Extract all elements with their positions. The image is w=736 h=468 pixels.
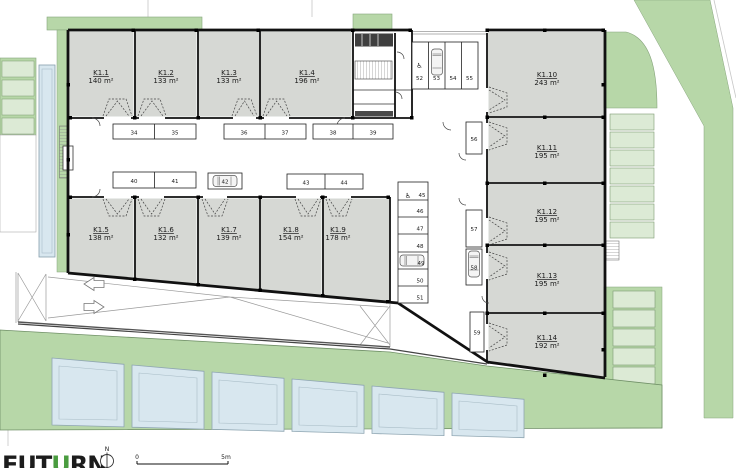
unit-area: 195 m² bbox=[534, 280, 559, 288]
floor-plan-page: 34 35 36 37 38 39 40 41 42 43 44 ♿ 52 53… bbox=[0, 0, 736, 468]
wheelchair-icon: ♿ bbox=[405, 192, 411, 200]
unit-id: K1.3 bbox=[221, 69, 237, 77]
stall-number: 56 bbox=[471, 137, 478, 143]
stall-number: 58 bbox=[471, 266, 478, 272]
unit-area: 132 m² bbox=[153, 234, 178, 242]
paved-area-left bbox=[0, 135, 36, 232]
stall-number: 36 bbox=[241, 131, 248, 137]
stall-number: 38 bbox=[330, 131, 337, 137]
unit-area: 192 m² bbox=[534, 342, 559, 350]
stall-number: 44 bbox=[341, 181, 348, 187]
unit-area: 154 m² bbox=[278, 234, 303, 242]
unit-area: 133 m² bbox=[153, 77, 178, 85]
unit-area: 138 m² bbox=[88, 234, 113, 242]
stall-number: 53 bbox=[433, 76, 440, 82]
scale-zero-label: 0 bbox=[135, 454, 139, 461]
unit-id: K1.4 bbox=[299, 69, 315, 77]
unit-area: 195 m² bbox=[534, 152, 559, 160]
parked-car bbox=[469, 251, 480, 277]
green-patch-core bbox=[353, 14, 392, 30]
north-label: N bbox=[105, 446, 110, 453]
site-plan-drawing: 34 35 36 37 38 39 40 41 42 43 44 ♿ 52 53… bbox=[0, 0, 736, 468]
unit-id: K1.1 bbox=[93, 69, 109, 77]
unit-area: 195 m² bbox=[534, 216, 559, 224]
arrow-left-icon bbox=[84, 278, 104, 291]
stall-number: 40 bbox=[131, 179, 138, 185]
stall-number: 49 bbox=[418, 261, 425, 267]
stall-number: 59 bbox=[474, 331, 481, 337]
stall-number: 54 bbox=[450, 76, 457, 82]
unit-id: K1.9 bbox=[330, 226, 346, 234]
footer: FUTURN N 0 5m bbox=[2, 446, 231, 468]
stall-number: 47 bbox=[417, 227, 424, 233]
north-arrow-icon: N bbox=[101, 446, 114, 468]
stall-number: 52 bbox=[416, 76, 423, 82]
wheelchair-icon: ♿ bbox=[416, 62, 422, 70]
stall-number: 41 bbox=[172, 179, 179, 185]
unit-area: 140 m² bbox=[88, 77, 113, 85]
logo: FUTURN bbox=[2, 451, 106, 468]
building bbox=[60, 29, 606, 379]
unit-area: 243 m² bbox=[534, 79, 559, 87]
stair-core bbox=[353, 34, 412, 117]
stall-number: 46 bbox=[417, 209, 424, 215]
unit-area: 178 m² bbox=[325, 234, 350, 242]
stall-number: 35 bbox=[172, 131, 179, 137]
stall-number: 50 bbox=[417, 279, 424, 285]
stall-number: 45 bbox=[419, 193, 426, 199]
stall-number: 51 bbox=[417, 296, 424, 302]
exterior-stair-right bbox=[606, 241, 619, 260]
stall-number: 43 bbox=[303, 181, 310, 187]
unit-area: 139 m² bbox=[216, 234, 241, 242]
parking-ladder-upper bbox=[610, 114, 654, 238]
unit-fills bbox=[70, 32, 604, 378]
unit-id: K1.14 bbox=[537, 334, 558, 342]
glass-canopy-strip bbox=[39, 65, 55, 257]
scale-max-label: 5m bbox=[221, 454, 231, 461]
unit-id: K1.7 bbox=[221, 226, 237, 234]
stall-number: 57 bbox=[471, 227, 478, 233]
stall-number: 42 bbox=[222, 180, 229, 186]
core-stair bbox=[355, 61, 392, 79]
logo-text: FUT bbox=[2, 451, 53, 468]
unit-id: K1.10 bbox=[537, 71, 557, 79]
parked-car bbox=[432, 49, 443, 75]
green-curve-right bbox=[604, 32, 657, 108]
unit-id: K1.5 bbox=[93, 226, 109, 234]
scale-bar: 0 5m bbox=[135, 454, 231, 464]
green-strip-top bbox=[47, 17, 202, 30]
stall-number: 39 bbox=[370, 131, 377, 137]
unit-area: 133 m² bbox=[216, 77, 241, 85]
stall-number: 34 bbox=[131, 131, 138, 137]
stall-number: 37 bbox=[282, 131, 289, 137]
unit-area: 196 m² bbox=[294, 77, 319, 85]
stall-number: 55 bbox=[466, 76, 473, 82]
unit-id: K1.11 bbox=[537, 144, 557, 152]
unit-id: K1.13 bbox=[537, 272, 557, 280]
unit-id: K1.12 bbox=[537, 208, 557, 216]
unit-id: K1.8 bbox=[283, 226, 299, 234]
stall-number: 48 bbox=[417, 244, 424, 250]
logo-accent: U bbox=[51, 451, 70, 468]
court-north-fence bbox=[412, 32, 487, 35]
unit-id: K1.6 bbox=[158, 226, 174, 234]
unit-id: K1.2 bbox=[158, 69, 174, 77]
